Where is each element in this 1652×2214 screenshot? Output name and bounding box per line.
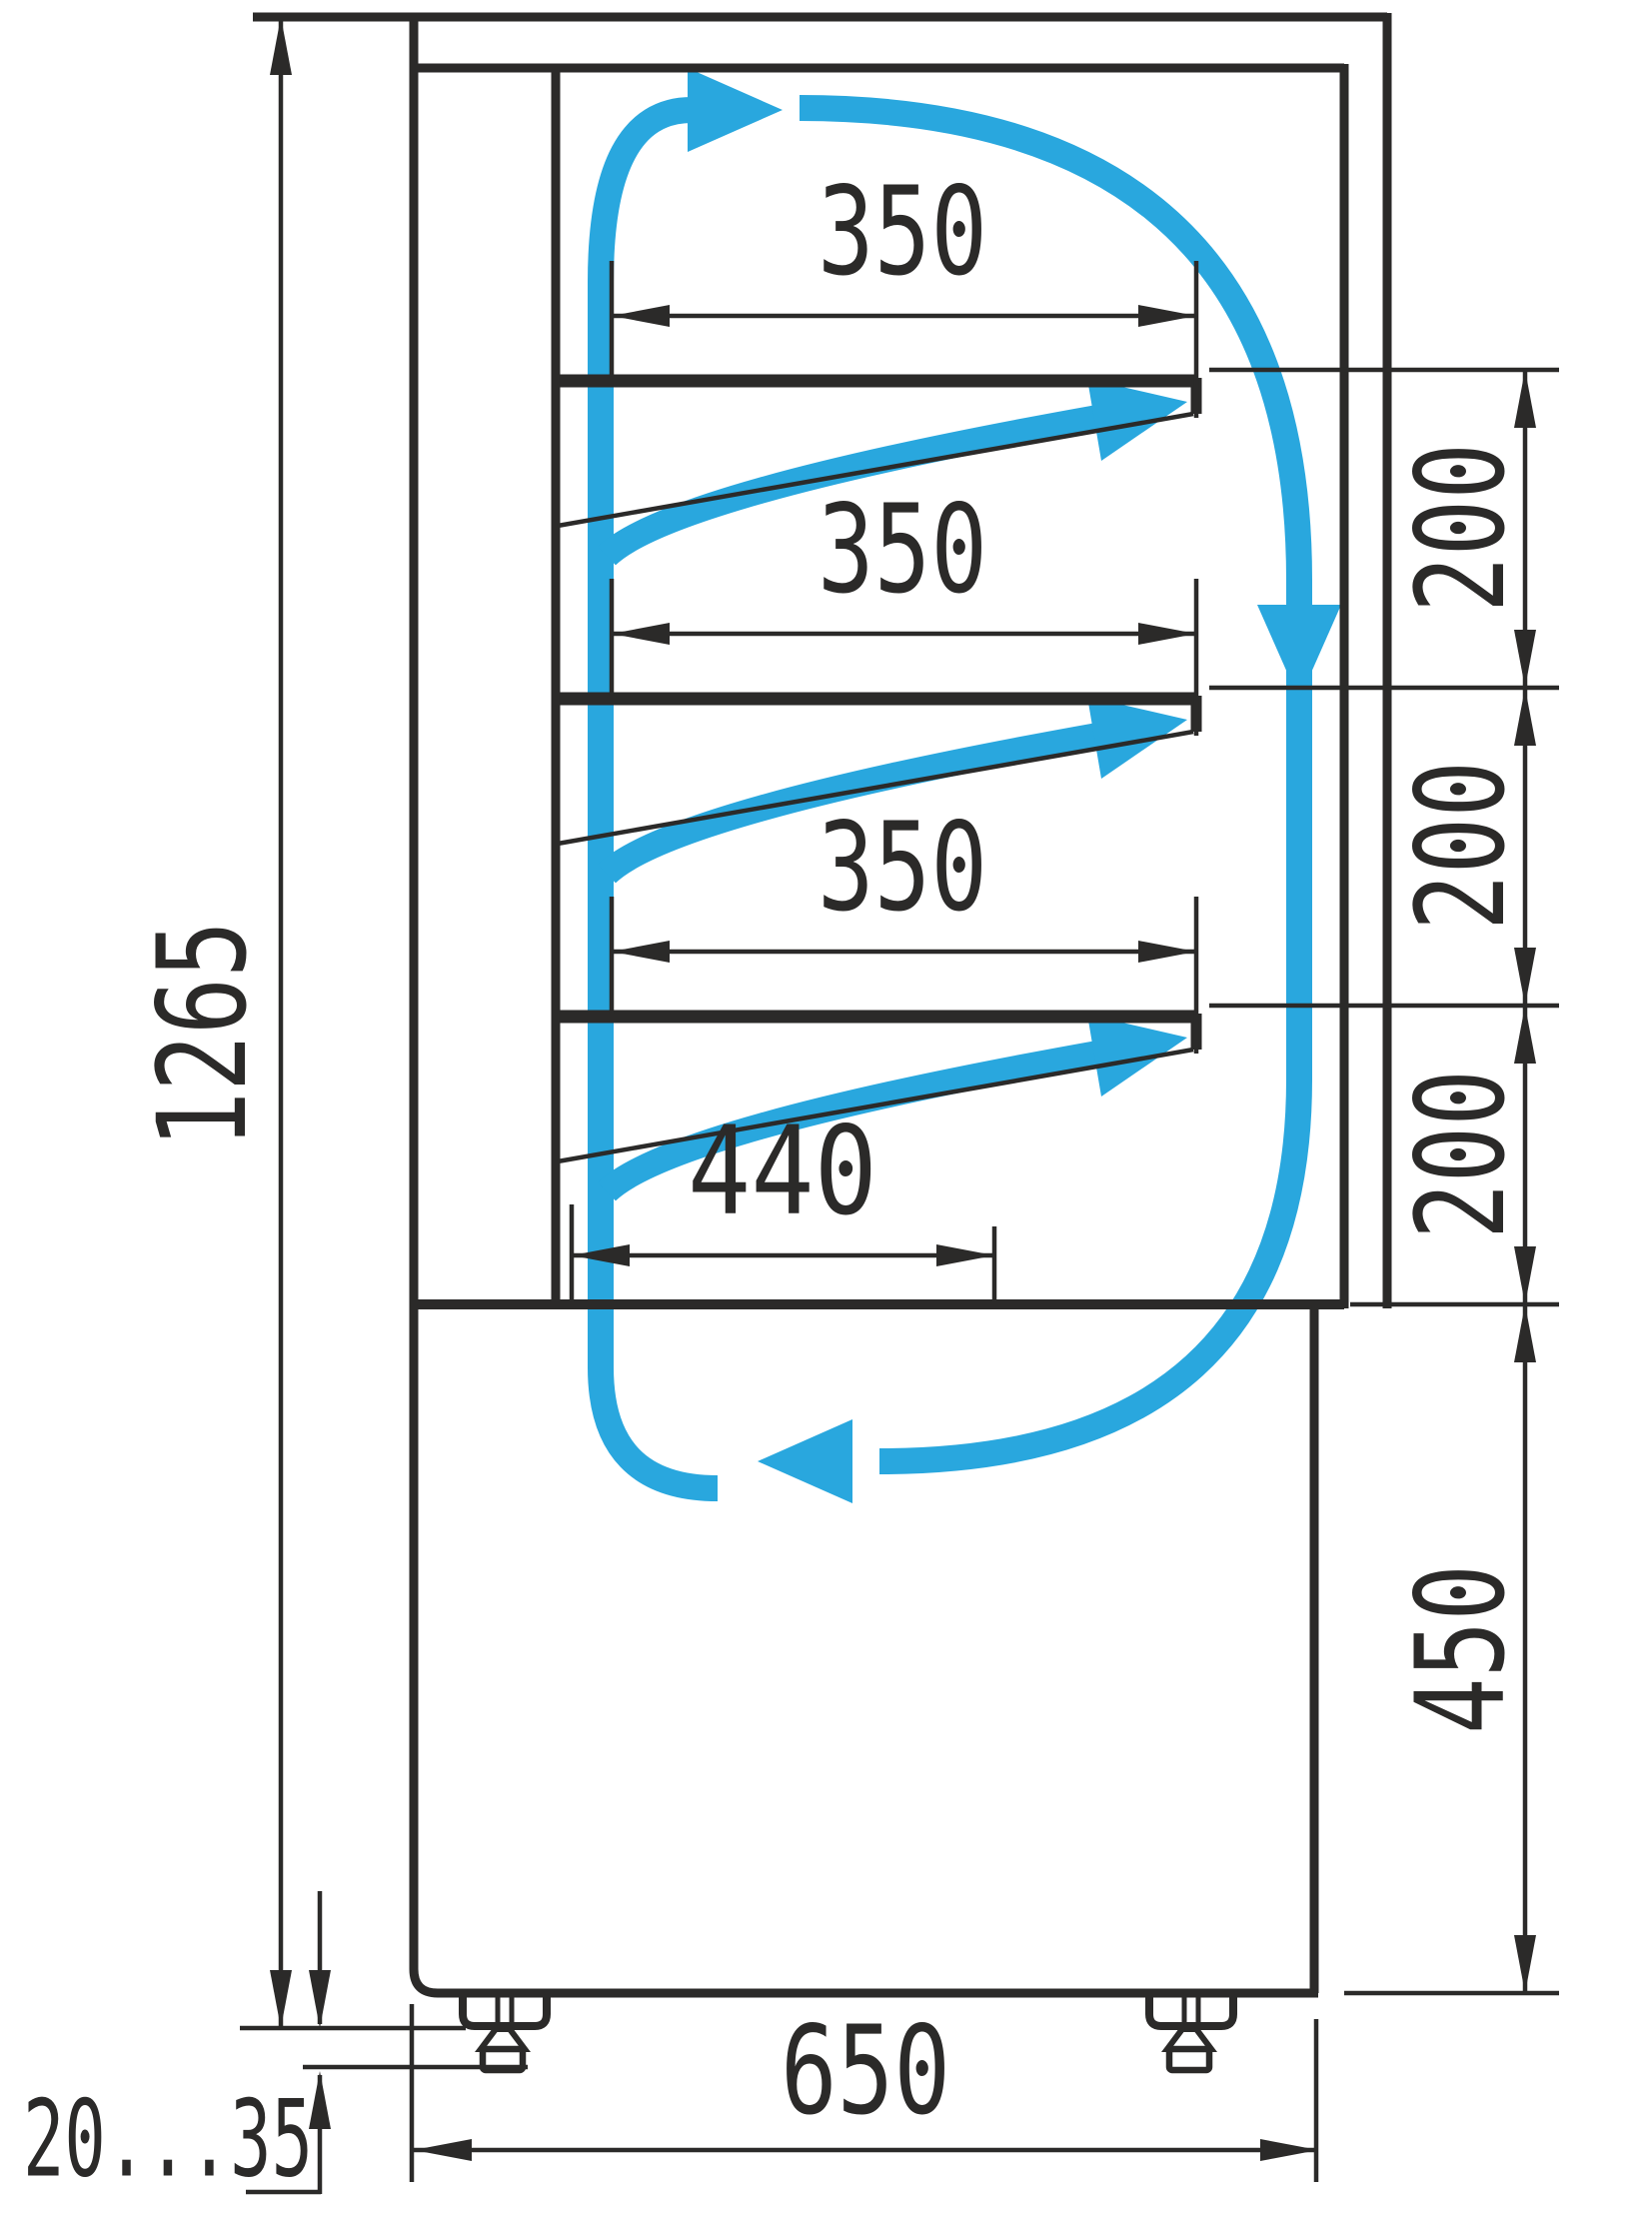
airflow-top-right-arrow-icon [688,68,783,152]
cabinet-structure [253,13,1387,1993]
dimension-labels: 1265 350 350 350 440 200 200 200 450 650… [23,161,1532,2201]
dim-deck-depth-label: 440 [688,1101,877,1242]
dim-spacing3-label: 200 [1390,1070,1532,1239]
dim-spacing2-label: 200 [1390,761,1532,931]
dim-shelf3-depth-label: 350 [818,797,987,939]
arrow-right-shelf2-icon [1138,623,1196,645]
arrow-right-base-depth-icon [1260,2139,1318,2161]
right-foot-pad [1169,2049,1209,2070]
dim-base-depth-label: 650 [781,2000,950,2142]
arrow-left-shelf3-icon [612,941,670,963]
right-foot-bracket [1149,1997,1233,2026]
arrow-up-spacing2-icon [1514,688,1536,746]
arrow-down-base-height-icon [1514,1935,1536,1993]
arrow-right-shelf1-icon [1138,305,1196,327]
dimension-lines [240,19,1559,2194]
arrow-down-spacing1-icon [1514,630,1536,688]
left-foot-screw [498,1997,512,2025]
arrow-left-shelf2-icon [612,623,670,645]
right-foot-screw [1184,1997,1198,2025]
dim-base-height-label: 450 [1390,1564,1532,1734]
arrow-left-base-depth-icon [414,2139,472,2161]
display-case-diagram: 1265 350 350 350 440 200 200 200 450 650… [0,0,1652,2214]
arrow-down-leg-adjust-icon [309,1970,331,2028]
arrow-up-overall-icon [270,17,292,75]
dim-leg-adjust-label: 20...35 [23,2078,313,2201]
airflow-shelf2-arrow-icon [1087,697,1187,779]
left-foot-bracket [463,1997,547,2026]
arrow-up-base-height-icon [1514,1304,1536,1362]
arrow-up-spacing1-icon [1514,370,1536,428]
arrow-up-spacing3-icon [1514,1006,1536,1064]
back-wall-and-base-bottom [414,13,1318,1993]
airflow-shelf1-arrow-icon [1087,379,1187,461]
arrow-right-deck-icon [936,1244,994,1266]
arrow-down-overall-icon [270,1970,292,2028]
airflow-shelf3-arrow-icon [1087,1015,1187,1097]
arrow-left-shelf1-icon [612,305,670,327]
dim-shelf2-depth-label: 350 [818,479,987,621]
dim-shelf1-depth-label: 350 [818,161,987,303]
arrow-right-shelf3-icon [1138,941,1196,963]
airflow-return-left-arrow-icon [758,1419,852,1503]
arrow-down-spacing2-icon [1514,948,1536,1006]
technical-drawing-canvas: 1265 350 350 350 440 200 200 200 450 650… [0,0,1652,2214]
arrow-down-spacing3-icon [1514,1246,1536,1304]
dim-overall-height-label: 1265 [132,921,274,1148]
dim-spacing1-label: 200 [1390,443,1532,613]
